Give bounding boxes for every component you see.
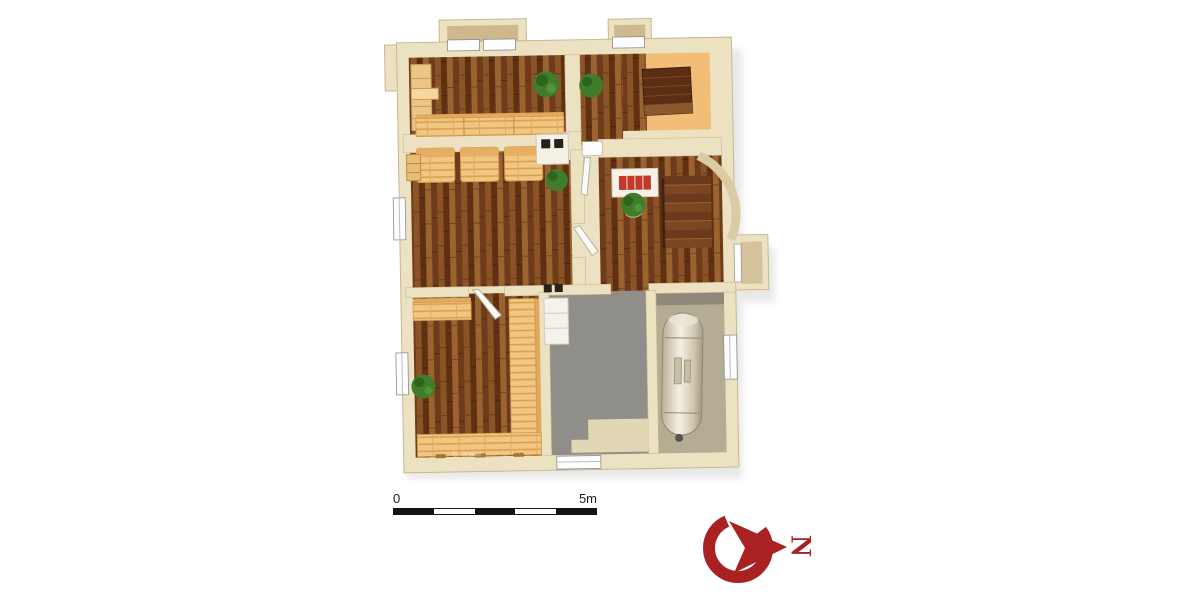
floorplan-render bbox=[0, 0, 1200, 600]
scale-bar-segment bbox=[434, 509, 474, 514]
wall-vent-right bbox=[555, 284, 563, 292]
north-letter: N bbox=[785, 535, 817, 557]
left-window-sauna bbox=[396, 353, 409, 395]
staircase bbox=[661, 175, 712, 248]
building bbox=[384, 14, 772, 473]
left-window-upper bbox=[393, 198, 406, 240]
scale-bar-segment bbox=[515, 509, 555, 514]
stove-unit bbox=[536, 134, 569, 165]
scale-bar bbox=[393, 508, 597, 515]
scale-bar-group: 0 5m bbox=[393, 491, 597, 515]
wood-loungers bbox=[416, 146, 543, 182]
scale-bar-segment bbox=[556, 509, 596, 514]
entry-door bbox=[557, 455, 601, 469]
boiler-tank bbox=[661, 313, 703, 443]
corridor-top-floor bbox=[580, 54, 624, 145]
scale-bar-segment bbox=[394, 509, 434, 514]
scale-start-label: 0 bbox=[393, 491, 400, 506]
doorframe-corridor bbox=[582, 141, 602, 155]
right-window-boiler bbox=[724, 335, 738, 379]
white-cabinet bbox=[544, 298, 569, 344]
niche-window bbox=[734, 244, 742, 282]
side-steps bbox=[406, 155, 420, 181]
scale-end-label: 5m bbox=[579, 491, 597, 506]
watermark: © www.·········· bbox=[452, 448, 552, 458]
sideboard bbox=[642, 67, 692, 115]
north-compass: N bbox=[698, 506, 816, 590]
wall-bench bbox=[416, 112, 564, 137]
wall-vent-left bbox=[544, 284, 552, 292]
scale-bar-segment bbox=[475, 509, 515, 514]
floorplan-page: © www.·········· 0 5m N bbox=[0, 0, 1200, 600]
niche-interior bbox=[741, 242, 763, 284]
boiler-room-shade bbox=[656, 292, 724, 305]
fireplace bbox=[612, 168, 658, 197]
